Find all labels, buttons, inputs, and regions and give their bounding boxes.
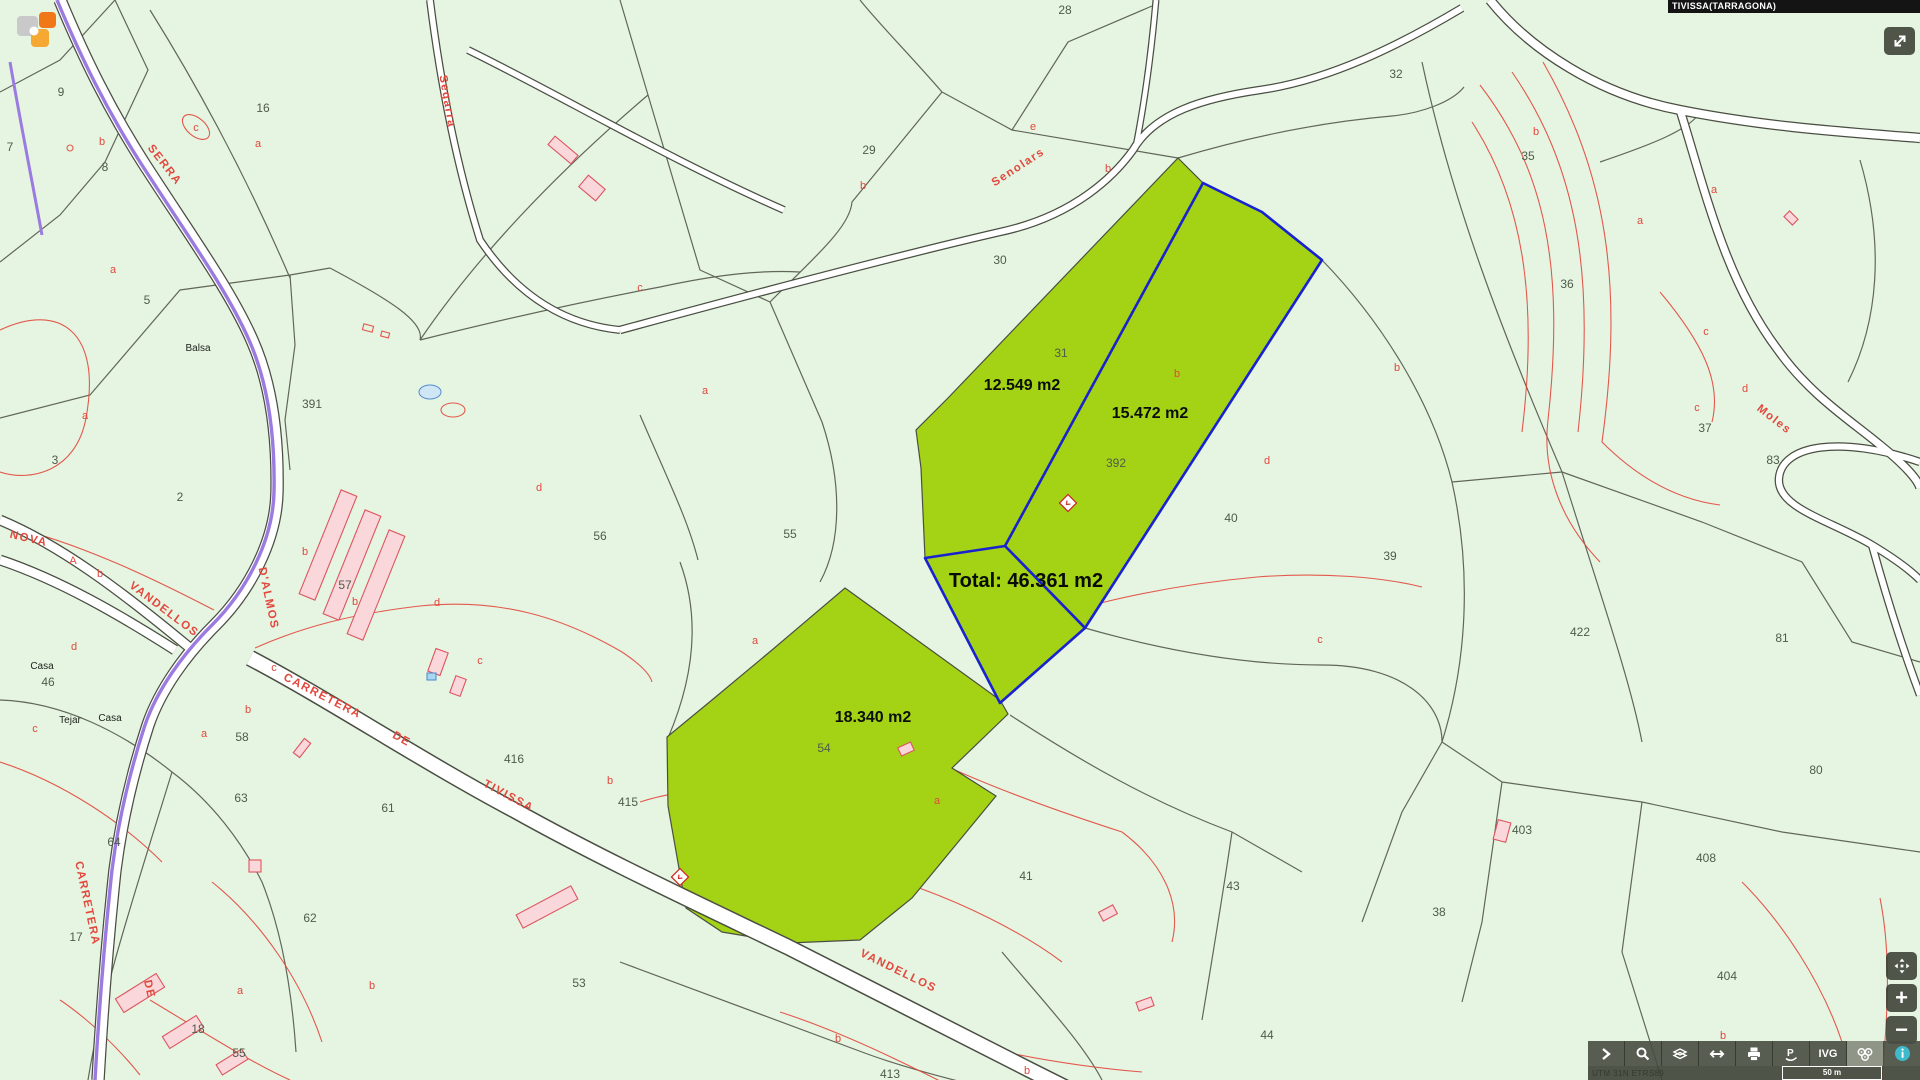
- map-label: 83: [1766, 453, 1780, 467]
- map-label: b: [607, 775, 613, 787]
- map-label: c: [271, 662, 277, 674]
- pan-icon: [1894, 958, 1910, 974]
- map-label: a: [752, 635, 759, 647]
- svg-text:P: P: [1787, 1048, 1794, 1059]
- map-label: 35: [1521, 149, 1535, 163]
- map-label: 18.340 m2: [835, 709, 912, 726]
- map-label: 39: [1383, 549, 1397, 563]
- map-label: 32: [1389, 67, 1403, 81]
- map-label: b: [99, 136, 105, 148]
- map-label: a: [702, 385, 709, 397]
- fullscreen-icon: [1892, 33, 1908, 49]
- map-label: e: [1030, 121, 1036, 133]
- map-label: 37: [1698, 421, 1712, 435]
- map-label: a: [237, 985, 244, 997]
- logo-orange-square: [39, 12, 56, 28]
- map-label: 62: [303, 911, 317, 925]
- pan-button[interactable]: [1886, 952, 1917, 980]
- search-button[interactable]: [1625, 1041, 1662, 1066]
- map-label: c: [1317, 634, 1323, 646]
- pool: [427, 673, 436, 680]
- map-label: 8: [102, 160, 109, 174]
- map-label: d: [434, 597, 440, 609]
- map-label: c: [193, 122, 199, 134]
- status-strip: UTM 31N ETRS89 50 m: [1588, 1066, 1920, 1080]
- map-label: 53: [572, 976, 586, 990]
- map-label: 5: [144, 293, 151, 307]
- map-label: 54: [817, 741, 831, 755]
- map-label: 44: [1260, 1028, 1274, 1042]
- map-label: 80: [1809, 763, 1823, 777]
- chevron-right-icon: [1598, 1046, 1614, 1062]
- map-label: 7: [7, 140, 14, 154]
- map-label: 64: [107, 835, 121, 849]
- parcel-pin-button[interactable]: P: [1773, 1041, 1810, 1066]
- map-label: b: [835, 1033, 841, 1045]
- map-label: 16: [256, 101, 270, 115]
- map-viewer: 2832352930363783313924039422818040340840…: [0, 0, 1920, 1080]
- search-icon: [1635, 1046, 1651, 1062]
- map-label: Total: 46.361 m2: [949, 570, 1103, 592]
- map-label: b: [1533, 126, 1539, 138]
- map-label: Casa: [30, 661, 54, 672]
- map-label: 40: [1224, 511, 1238, 525]
- map-label: 413: [880, 1067, 900, 1080]
- pin-p-icon: P: [1783, 1046, 1799, 1062]
- map-label: 43: [1226, 879, 1240, 893]
- map-label: 30: [993, 253, 1007, 267]
- map-label: a: [1637, 215, 1644, 227]
- map-label: 55: [232, 1046, 246, 1060]
- map-label: 9: [58, 85, 65, 99]
- layers-icon: [1672, 1046, 1688, 1062]
- map-label: Tejar: [59, 715, 81, 726]
- map-label: c: [477, 655, 483, 667]
- map-label: b: [245, 704, 251, 716]
- map-label: 2: [177, 490, 184, 504]
- zoom-out-icon: −: [1895, 1019, 1908, 1041]
- map-label: b: [1394, 362, 1400, 374]
- map-label: 55: [783, 527, 797, 541]
- map-label: d: [1264, 455, 1270, 467]
- measure-button[interactable]: [1699, 1041, 1736, 1066]
- map-label: 3: [52, 453, 59, 467]
- ivg-button[interactable]: IVG: [1810, 1041, 1847, 1066]
- map-label: d: [1742, 383, 1748, 395]
- map-label: 415: [618, 795, 638, 809]
- map-label: 81: [1775, 631, 1789, 645]
- map-label: Casa: [98, 713, 122, 724]
- map-label: b: [97, 568, 103, 580]
- map-label: b: [302, 546, 308, 558]
- scale-bar: 50 m: [1782, 1066, 1882, 1080]
- map-canvas[interactable]: 2832352930363783313924039422818040340840…: [0, 0, 1920, 1080]
- map-label: 46: [41, 675, 55, 689]
- map-label: 63: [234, 791, 248, 805]
- map-label: 422: [1570, 625, 1590, 639]
- map-label: 29: [862, 143, 876, 157]
- map-label: b: [1174, 368, 1180, 380]
- catastro-logo: [10, 6, 62, 54]
- printer-icon: [1746, 1046, 1762, 1062]
- map-label: d: [536, 482, 542, 494]
- map-label: 408: [1696, 851, 1716, 865]
- map-label: 15.472 m2: [1112, 405, 1189, 422]
- ivg-label: IVG: [1819, 1048, 1838, 1060]
- ortho-imagery-button[interactable]: [1847, 1041, 1884, 1066]
- map-label: A: [69, 555, 77, 567]
- zoom-in-button[interactable]: +: [1886, 984, 1917, 1012]
- map-label: b: [860, 180, 866, 192]
- map-label: 61: [381, 801, 395, 815]
- total-area-label: Total: 46.361 m2: [949, 570, 1103, 592]
- map-label: a: [255, 138, 262, 150]
- map-label: 36: [1560, 277, 1574, 291]
- map-label: 28: [1058, 3, 1072, 17]
- map-label: 391: [302, 397, 322, 411]
- map-label: b: [1105, 163, 1111, 175]
- map-label: 56: [593, 529, 607, 543]
- expand-toolbar-button[interactable]: [1588, 1041, 1625, 1066]
- map-label: 392: [1106, 456, 1126, 470]
- horizontal-arrows-icon: [1709, 1046, 1725, 1062]
- info-icon: [1894, 1045, 1911, 1062]
- map-label: c: [637, 282, 643, 294]
- map-label: b: [352, 596, 358, 608]
- fullscreen-button[interactable]: [1884, 27, 1915, 55]
- map-label: c: [1703, 326, 1709, 338]
- map-label: c: [1694, 402, 1700, 414]
- map-label: 38: [1432, 905, 1446, 919]
- pond: [419, 385, 441, 399]
- map-label: 57: [338, 578, 352, 592]
- map-label: Balsa: [185, 343, 210, 354]
- clouds-icon: [1856, 1046, 1874, 1062]
- map-label: a: [934, 795, 941, 807]
- map-label: b: [369, 980, 375, 992]
- map-label: 58: [235, 730, 249, 744]
- map-label: c: [32, 723, 38, 735]
- zoom-in-icon: +: [1895, 987, 1908, 1009]
- map-label: a: [82, 410, 89, 422]
- logo-white-dot: [30, 27, 39, 36]
- map-label: 41: [1019, 869, 1033, 883]
- attribution-text: UTM 31N ETRS89: [1592, 1069, 1664, 1078]
- map-label: a: [1711, 184, 1718, 196]
- zoom-out-button[interactable]: −: [1886, 1016, 1917, 1044]
- map-label: 416: [504, 752, 524, 766]
- layers-button[interactable]: [1662, 1041, 1699, 1066]
- print-button[interactable]: [1736, 1041, 1773, 1066]
- map-label: 18: [191, 1022, 205, 1036]
- map-toolbar: P IVG: [1588, 1041, 1920, 1066]
- map-label: b: [1024, 1065, 1030, 1077]
- map-label: 12.549 m2: [984, 377, 1061, 394]
- map-label: 17: [69, 930, 83, 944]
- info-button[interactable]: [1884, 1041, 1920, 1066]
- map-label: a: [201, 728, 208, 740]
- map-label: a: [110, 264, 117, 276]
- map-label: 31: [1054, 346, 1068, 360]
- map-label: 403: [1512, 823, 1532, 837]
- map-label: d: [71, 641, 77, 653]
- municipality-label: TIVISSA(TARRAGONA): [1668, 0, 1920, 13]
- map-label: 404: [1717, 969, 1737, 983]
